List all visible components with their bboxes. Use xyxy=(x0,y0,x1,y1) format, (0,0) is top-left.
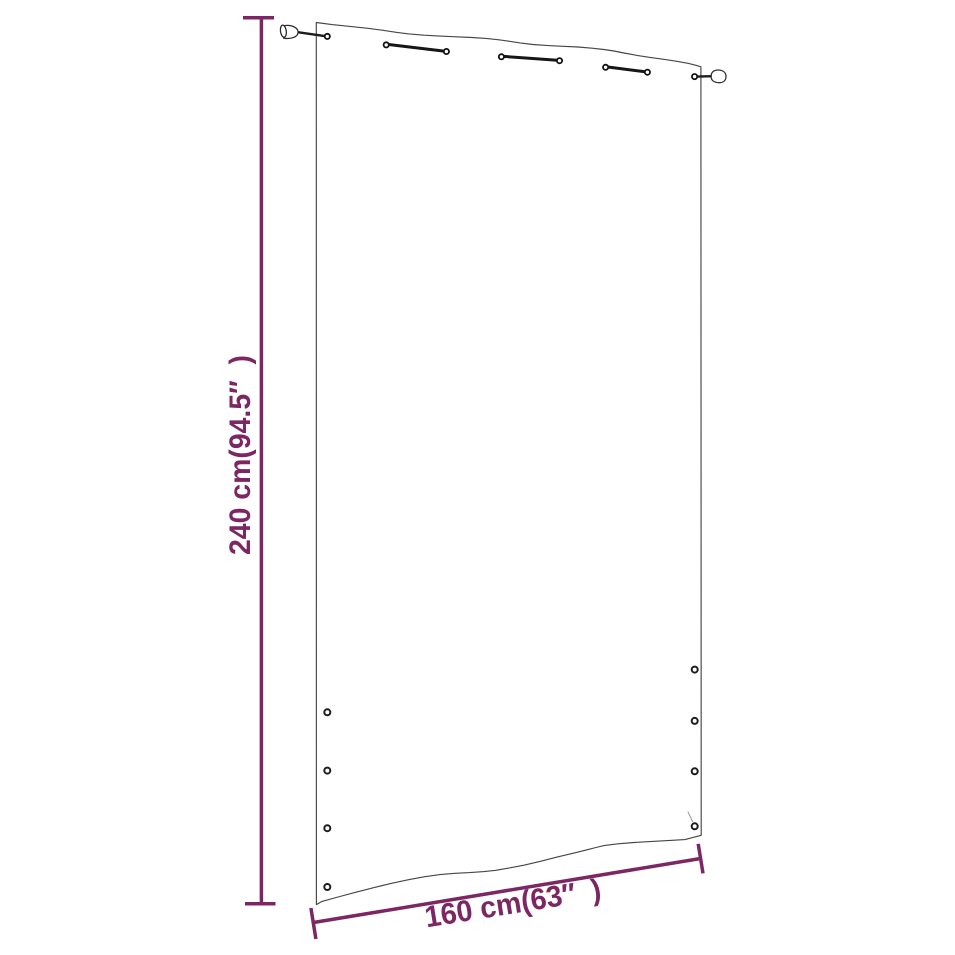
svg-text:160 cm(63″ ): 160 cm(63″ ) xyxy=(422,873,603,934)
svg-text:240 cm(94.5″ ): 240 cm(94.5″ ) xyxy=(224,355,257,555)
